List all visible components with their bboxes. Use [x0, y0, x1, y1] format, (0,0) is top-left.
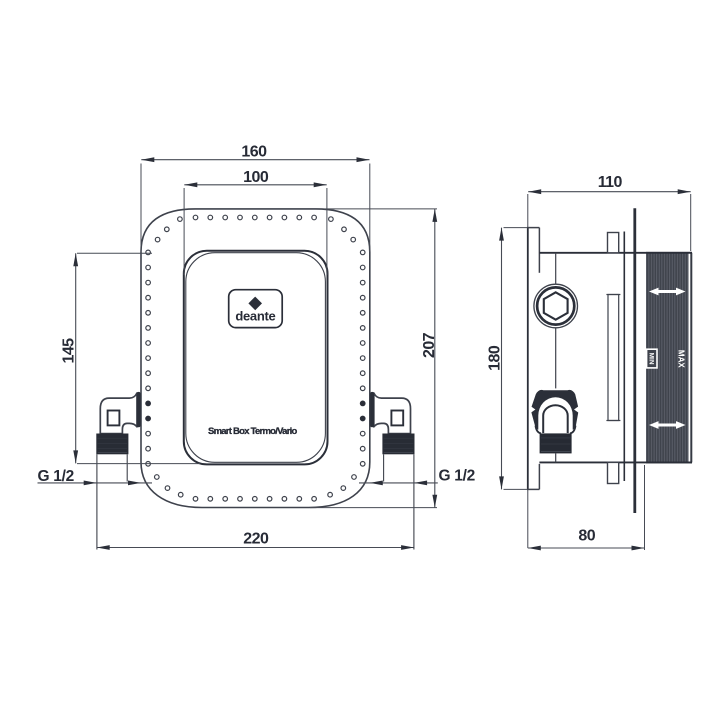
svg-text:180: 180: [486, 345, 503, 371]
svg-text:MIN: MIN: [647, 353, 654, 365]
svg-text:160: 160: [241, 143, 267, 160]
svg-text:Smart Box Termo/Vario: Smart Box Termo/Vario: [208, 426, 298, 437]
svg-text:MAX: MAX: [676, 350, 685, 368]
svg-text:G 1/2: G 1/2: [439, 468, 475, 485]
svg-text:100: 100: [243, 169, 269, 186]
svg-text:220: 220: [243, 531, 269, 548]
svg-text:110: 110: [598, 174, 623, 191]
svg-text:deante: deante: [235, 309, 275, 324]
svg-text:145: 145: [60, 338, 77, 364]
svg-text:80: 80: [578, 528, 595, 545]
svg-text:G 1/2: G 1/2: [38, 468, 74, 485]
svg-text:207: 207: [421, 332, 438, 358]
